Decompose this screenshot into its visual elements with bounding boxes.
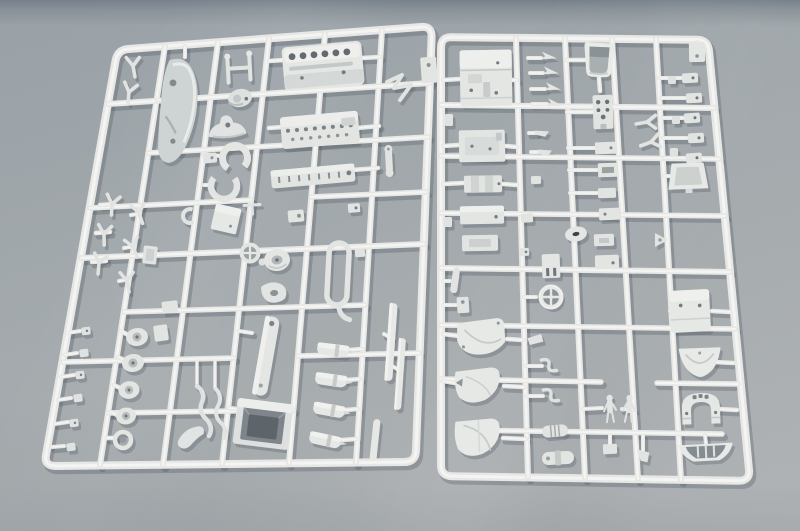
- square-clip: [672, 116, 680, 124]
- mid-panel: [595, 255, 619, 270]
- ribbed-block: [542, 254, 561, 279]
- panelet: [161, 300, 178, 314]
- knob: [69, 418, 79, 427]
- knob: [73, 393, 83, 402]
- fuselage-deck-panel: [460, 50, 513, 107]
- corner-clip: [689, 42, 705, 62]
- right-col-clip: [686, 93, 703, 104]
- pilot-seat: [583, 42, 614, 77]
- arch-cowl-ring: [681, 392, 720, 424]
- panelet: [153, 324, 169, 342]
- edge-tab: [444, 217, 452, 227]
- sprue-photo-svg: [0, 0, 800, 531]
- photo-model-kit-sprues: [0, 0, 800, 531]
- right-col-clip: [688, 133, 705, 144]
- cowl-panel: [669, 289, 711, 333]
- mid-panel: [598, 163, 618, 178]
- low-panel: [460, 206, 504, 225]
- mid-panel: [595, 142, 617, 155]
- small-clip: [531, 176, 541, 184]
- left-sprue: [46, 27, 441, 470]
- mid-panel: [599, 208, 621, 221]
- notched-cluster: [464, 175, 502, 193]
- right-sprue: [441, 37, 752, 484]
- dome-cowl: [679, 347, 722, 377]
- panelet: [142, 245, 158, 264]
- bone-link: [384, 145, 394, 177]
- right-col-clip: [682, 73, 699, 84]
- square-clip: [668, 76, 676, 84]
- low-panel: [462, 235, 498, 252]
- knob: [66, 442, 76, 451]
- knob: [81, 326, 91, 335]
- bottom-clip: [603, 444, 617, 454]
- mid-panel: [598, 188, 616, 199]
- small-clip: [355, 249, 366, 258]
- control-wheel: [540, 286, 563, 309]
- knob: [79, 348, 89, 357]
- small-clip: [348, 203, 361, 213]
- clip-plate: [288, 209, 305, 222]
- figure-strut: [604, 395, 617, 423]
- engine-cylinder-block: [280, 111, 360, 150]
- post-frame-part: [224, 50, 254, 82]
- small-clip: [521, 213, 533, 223]
- right-col-clip: [686, 152, 703, 163]
- radiator-box: [232, 398, 293, 450]
- hatch-panel: [459, 130, 506, 163]
- right-col-clip: [684, 112, 701, 123]
- knob: [75, 370, 85, 379]
- corner-clip: [420, 56, 438, 83]
- engine-valve-cover: [281, 41, 365, 92]
- small-clip: [519, 248, 529, 257]
- square-clip: [670, 148, 678, 156]
- bracket-part: [456, 297, 469, 314]
- mid-panel: [594, 234, 614, 247]
- instrument-panel: [592, 95, 613, 130]
- edge-tab: [445, 114, 453, 126]
- clip-plate: [203, 152, 218, 163]
